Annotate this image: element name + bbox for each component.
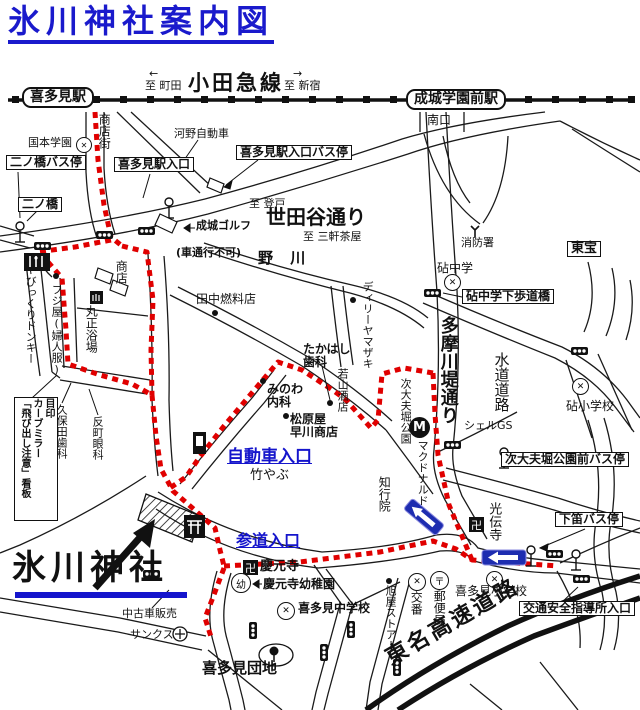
keigenji-temple-icon: 卍: [243, 560, 258, 575]
car-entrance-link[interactable]: 自動車入口: [227, 448, 312, 467]
kinuta-chugaku-school-icon: ✕: [444, 274, 461, 291]
kitami-chugakko-label: 喜多見中学校: [298, 602, 370, 615]
hikawa-shrine-label: 氷川神社: [12, 550, 168, 587]
shotengai-label: 商店街: [97, 113, 110, 149]
no-vehicle-note: (車通行不可): [176, 247, 241, 259]
odakyu-line-label: 小田急線: [188, 72, 284, 95]
ninohashi-bus-stop-box: 二ノ橋バス停: [6, 155, 86, 170]
kitami-eki-iriguchi-bus-stop-box: 喜多見駅入口バス停: [236, 145, 352, 160]
mcdonalds-label: マクドナルド: [416, 440, 428, 506]
sando-entrance-link[interactable]: 参道入口: [236, 532, 300, 550]
kitami-danchi-label: 喜多見団地: [202, 660, 277, 677]
shimobue-bus-stop-box: 下笛バス停: [555, 512, 623, 527]
seijo-golf-building: [155, 214, 177, 233]
shoten-label: 商店: [114, 260, 127, 284]
nogawa-river-label: 野 川: [258, 250, 311, 267]
odakyu-railway-line: [8, 96, 635, 103]
setagaya-dori-label: 世田谷通り: [266, 206, 366, 228]
restaurant-icon: [24, 253, 50, 271]
hikawa-shrine-underline: [15, 592, 187, 598]
mcdonalds-m-icon: M: [409, 417, 430, 438]
tamagawa-tsutsumi-dori-label: 多摩川堤通り: [438, 316, 458, 424]
takahashi-shika-label: たかはし 歯科: [303, 343, 351, 369]
seijo-golf-label: 成城ゴルフ: [196, 220, 251, 232]
kitami-chugakko-school-icon: ✕: [277, 602, 295, 620]
south-exit-label: 南口: [427, 114, 451, 127]
to-machida-label: 至 町田: [145, 80, 182, 92]
road-network: [0, 112, 640, 710]
phone-booth-icon: [193, 432, 206, 454]
chukosha-hanbai-label: 中古車販売: [122, 608, 177, 620]
koban-label: 交番: [409, 591, 422, 615]
ninohashi-box: 二ノ橋: [18, 197, 62, 212]
jidayubori-koen-label: 次大夫堀公園: [399, 378, 411, 444]
keigenji-label: 慶元寺: [260, 560, 299, 574]
one-way-arrow-sign-horizontal: [482, 550, 526, 565]
landmark-sign-box: 目印 カーブミラー 「飛び出し注意」看板: [14, 397, 58, 521]
bikkuri-donkey-label: びっくりドンキー: [24, 276, 36, 364]
kunimoto-school-icon: ✕: [76, 137, 92, 153]
sorimachi-ganka-label: 反町眼科: [91, 416, 103, 460]
wakayama-saketen-label: 若山酒店: [336, 368, 348, 412]
suido-road-label: 水道道路: [493, 352, 510, 412]
kubota-shika-label: 久保田歯科: [55, 404, 67, 459]
chigyoin-label: 知行院: [377, 476, 390, 512]
sunkus-icon: [173, 627, 187, 641]
kinuta-chugaku-label: 砧中学: [437, 262, 473, 275]
fire-station-label: 消防署: [461, 237, 494, 249]
tanaka-nenryoten-label: 田中燃料店: [196, 293, 256, 306]
seijogakuenmae-station-box: 成城学園前駅: [406, 89, 506, 110]
kodenji-label: 光伝寺: [486, 502, 500, 541]
matsubaraya-hayakawa-label: 松原屋 早川商店: [290, 413, 338, 439]
kodenji-temple-icon: 卍: [469, 517, 484, 532]
torii-icon: [184, 515, 205, 538]
kinuta-hodokyo-box: 砧中学下歩道橋: [462, 289, 554, 304]
fujiya-label: フジ屋(婦人服): [50, 284, 62, 376]
marusho-yokujo-label: 丸正浴場: [84, 305, 97, 353]
takeyabu-label: 竹やぶ: [250, 469, 289, 483]
kono-jidosha-label: 河野自動車: [174, 128, 229, 140]
daily-yamazaki-label: ディリーヤマザキ: [361, 281, 373, 369]
jidayubori-bus-stop-box: 次大夫堀公園前バス停: [501, 452, 629, 467]
bathhouse-icon: [90, 291, 103, 304]
post-office-icon: 〒: [430, 571, 449, 590]
keigenji-yochien-label: 慶元寺幼稚園: [263, 578, 335, 591]
minowa-naika-label: みのわ 内科: [267, 383, 303, 409]
map-title: 氷川神社案内図: [8, 4, 274, 44]
kinuta-shogakko-label: 砧小学校: [566, 400, 614, 413]
shell-gs-label: シェルGS: [464, 420, 513, 432]
kitami-station-box: 喜多見駅: [22, 87, 94, 108]
kitami-eki-iriguchi-box: 喜多見駅入口: [114, 157, 194, 172]
kinuta-shogakko-school-icon: ✕: [572, 378, 589, 395]
to-shinjuku-label: 至 新宿: [284, 80, 321, 92]
to-sangenjaya-label: 至 三軒茶屋: [303, 231, 362, 243]
toho-box: 東宝: [567, 241, 601, 257]
kotsu-anzen-box: 交通安全指導所入口: [519, 601, 635, 616]
sunkus-label: サンクス: [130, 629, 174, 641]
koban-icon: ✕: [408, 573, 426, 591]
kunimoto-gakuen-label: 国本学園: [28, 137, 72, 149]
kindergarten-icon: 幼: [231, 573, 251, 593]
hikawa-shrine-guide-map: 氷川神社案内図 ← 至 町田 小田急線 → 至 新宿 喜多見駅 成城学園前駅 南…: [0, 0, 640, 710]
